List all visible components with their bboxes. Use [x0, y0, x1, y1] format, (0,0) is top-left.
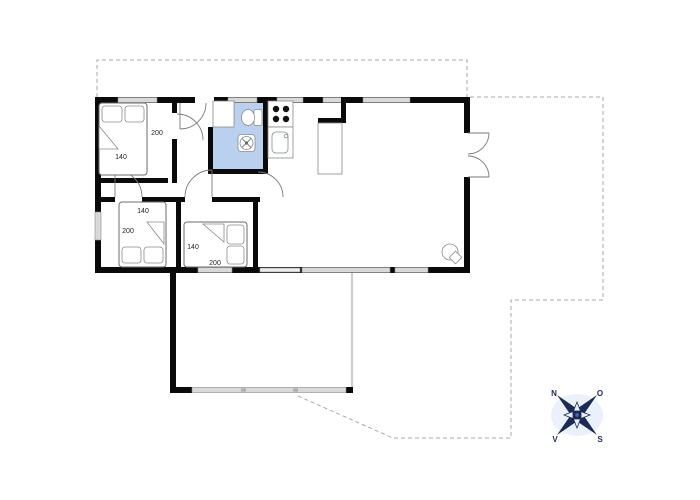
- pillow-icon: [102, 106, 122, 122]
- entrance-opening: [195, 97, 214, 104]
- patio-door-opening: [463, 133, 471, 177]
- glazing-mullion: [241, 388, 246, 391]
- bed1-width-label: 140: [115, 154, 127, 161]
- wall-bedroom2-bedroom3: [176, 202, 181, 267]
- wall-hall-south: [142, 197, 185, 202]
- window: [363, 98, 410, 103]
- wall-bedroom3-living: [253, 197, 258, 267]
- window-south: [302, 268, 390, 273]
- east-wall: [464, 97, 470, 273]
- terrace-floor: [176, 273, 352, 387]
- pillow-icon: [144, 247, 163, 263]
- stove-icon: [268, 101, 293, 127]
- pillow-icon: [122, 247, 141, 263]
- pillow-icon: [125, 106, 144, 122]
- bed3-length-label: 200: [209, 260, 221, 267]
- terrace-corner-left: [170, 387, 192, 393]
- terrace-glazing: [192, 388, 346, 393]
- bed3-width-label: 140: [187, 244, 199, 251]
- closet-wall: [318, 118, 346, 123]
- bed2-width-label: 140: [137, 208, 149, 215]
- pillow-icon: [227, 225, 244, 244]
- bathroom-door-leaf: [213, 101, 234, 127]
- wall-bathroom-kitchen: [263, 97, 268, 174]
- compass-label-east: O: [597, 389, 603, 398]
- compass-label-south: S: [597, 435, 603, 444]
- wall-bedroom1-hall-lower: [172, 139, 177, 183]
- window: [118, 98, 157, 103]
- bedroom1-door-opening: [171, 113, 178, 139]
- glazing-mullion: [293, 388, 298, 391]
- closet-cabinet: [318, 123, 342, 174]
- compass-label-north: N: [551, 389, 557, 398]
- bed-bedroom1: [99, 103, 147, 175]
- window-west: [95, 212, 101, 240]
- sink-icon: [268, 127, 293, 158]
- bed1-length-label: 200: [151, 130, 163, 137]
- wall-bathroom-south: [208, 169, 268, 174]
- wall-bedroom1-south: [95, 178, 168, 183]
- terrace-left-wall: [170, 273, 176, 393]
- wall-hall-south: [95, 197, 115, 202]
- boundary-north: [97, 60, 467, 97]
- wall-bathroom-west: [208, 127, 213, 171]
- kitchen: [268, 101, 293, 158]
- terrace-corner-right: [346, 387, 353, 393]
- shower-drain-icon: [238, 135, 255, 152]
- terrace: [170, 273, 353, 393]
- window-south: [395, 268, 428, 273]
- wall-bedroom1-hall-upper: [172, 97, 177, 113]
- floor-plan-drawing: 200 140 140 200 140 200 N O S V: [0, 0, 700, 500]
- compass-rose: N O S V: [551, 389, 603, 444]
- window-south: [198, 268, 232, 273]
- patio-door-swing-bottom: [468, 156, 489, 177]
- pillow-icon: [227, 246, 244, 264]
- bedroom3-door-opening: [185, 197, 212, 203]
- wall-hall-south: [212, 197, 260, 202]
- floor-plan-page: 200 140 140 200 140 200 N O S V: [0, 0, 700, 500]
- bed2-length-label: 200: [122, 228, 134, 235]
- compass-center-dot: [575, 413, 578, 416]
- sliding-door: [260, 268, 300, 272]
- patio-door-swing-top: [468, 133, 489, 154]
- window: [323, 98, 343, 103]
- toilet-icon: [242, 110, 263, 126]
- compass-label-west: V: [552, 435, 558, 444]
